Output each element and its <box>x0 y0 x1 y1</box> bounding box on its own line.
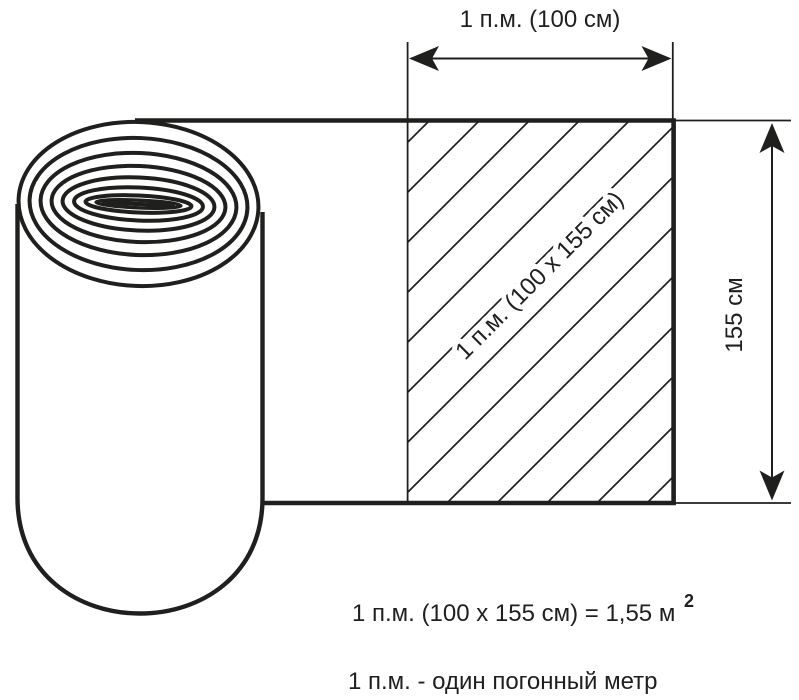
top-dimension-label: 1 п.м. (100 см) <box>460 6 621 33</box>
fabric-roll <box>15 117 262 614</box>
formula-text: 1 п.м. (100 х 155 см) = 1,55 м <box>352 600 675 627</box>
formula-superscript: 2 <box>684 591 694 611</box>
linear-meter-diagram: 1 п.м. (100 см) 155 см 1 п.м. (100 х 155… <box>0 0 799 700</box>
top-dimension-arrow <box>409 46 672 71</box>
roll-body <box>18 204 263 614</box>
diagram-canvas: 1 п.м. (100 см) 155 см 1 п.м. (100 х 155… <box>0 0 799 700</box>
definition-text: 1 п.м. - один погонный метр <box>348 668 657 695</box>
side-dimension-label: 155 см <box>721 277 748 352</box>
side-dimension-arrow <box>760 123 785 501</box>
hatched-area <box>408 121 674 504</box>
